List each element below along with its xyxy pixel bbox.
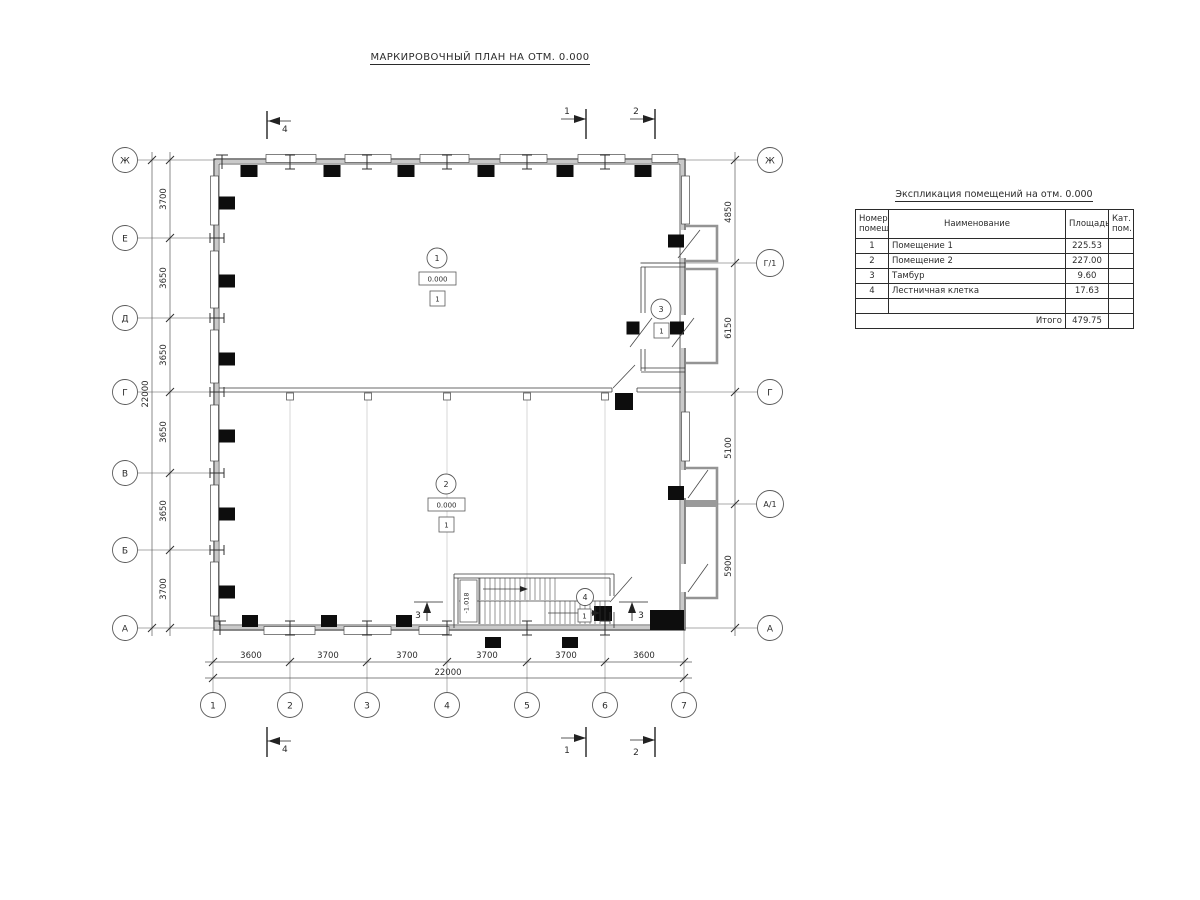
section-arrow-head bbox=[574, 734, 586, 742]
room-name-cell: Помещение 2 bbox=[889, 254, 1066, 269]
stair-landing-elevation: -1.018 bbox=[463, 593, 471, 614]
axis-lines-right bbox=[640, 160, 757, 628]
pier bbox=[219, 430, 235, 443]
dim-left-1: 3700 bbox=[159, 188, 169, 210]
section-label: 2 bbox=[633, 107, 639, 117]
room-name-cell: Лестничная клетка bbox=[889, 284, 1066, 299]
section-label: 2 bbox=[633, 748, 639, 758]
section-label: 1 bbox=[564, 746, 570, 756]
axis-label: А bbox=[122, 625, 129, 635]
pier bbox=[219, 508, 235, 521]
room-3-label: 3 1 bbox=[651, 299, 671, 338]
dim-right-4: 5900 bbox=[724, 555, 734, 577]
pier bbox=[321, 615, 337, 627]
axis-label: 3 bbox=[364, 702, 370, 712]
pier bbox=[562, 637, 578, 648]
room-schedule-table: Номер помещ. Наименование Площадь Кат. п… bbox=[855, 209, 1134, 329]
total-area: 479.75 bbox=[1066, 314, 1109, 329]
window bbox=[420, 155, 469, 163]
section-label: 3 bbox=[415, 611, 421, 621]
dim-left-4: 3650 bbox=[159, 421, 169, 443]
pier bbox=[478, 165, 495, 177]
dim-right-3: 5100 bbox=[724, 437, 734, 459]
stair-treads-lower-left bbox=[480, 601, 520, 624]
elevation-value: 0.000 bbox=[427, 276, 447, 284]
window bbox=[211, 485, 219, 541]
empty-cell bbox=[856, 299, 889, 314]
pier bbox=[398, 165, 415, 177]
dim-right-2: 6150 bbox=[724, 317, 734, 339]
floor-plan-drawing: 3700 3650 3650 3650 3650 3700 22000 4850… bbox=[0, 0, 1200, 900]
porch-outline bbox=[686, 269, 717, 363]
dim-bottom-2: 3700 bbox=[317, 651, 339, 661]
pier bbox=[670, 322, 684, 335]
room-area-cell: 9.60 bbox=[1066, 269, 1109, 284]
room-area-cell: 225.53 bbox=[1066, 239, 1109, 254]
room-labels: 1 0.000 1 2 0.000 1 3 1 bbox=[419, 248, 671, 622]
axis-label: 6 bbox=[602, 702, 608, 712]
floor-type: 1 bbox=[444, 522, 448, 530]
room-schedule-title: Экспликация помещений на отм. 0.000 bbox=[855, 189, 1133, 200]
pier bbox=[485, 637, 501, 648]
room-number-cell: 3 bbox=[856, 269, 889, 284]
section-label: 4 bbox=[282, 745, 288, 755]
door-swings bbox=[610, 230, 708, 602]
drawing-sheet: МАРКИРОВОЧНЫЙ ПЛАН НА ОТМ. 0.000 3700 36… bbox=[0, 0, 1200, 900]
pier bbox=[219, 197, 235, 210]
room-2-label: 2 0.000 1 bbox=[428, 474, 465, 532]
room-number: 1 bbox=[434, 254, 439, 263]
axis-label: 7 bbox=[681, 702, 687, 712]
porch-outline bbox=[686, 468, 717, 598]
axis-label: А bbox=[767, 625, 774, 635]
room-category-cell bbox=[1109, 284, 1134, 299]
dim-bottom-6: 3600 bbox=[633, 651, 655, 661]
dim-bottom-3: 3700 bbox=[396, 651, 418, 661]
wall-post bbox=[444, 393, 451, 400]
porches bbox=[686, 226, 717, 598]
middle-wall bbox=[219, 388, 681, 400]
section-arrow-head bbox=[268, 737, 280, 745]
porch-wall-band bbox=[686, 500, 717, 507]
dim-left-2: 3650 bbox=[159, 267, 169, 289]
dim-ticks bbox=[148, 156, 739, 682]
floor-type: 1 bbox=[435, 296, 439, 304]
axis-label: Ж bbox=[765, 157, 775, 167]
wall-post bbox=[602, 393, 609, 400]
wall-post bbox=[524, 393, 531, 400]
window bbox=[652, 155, 678, 163]
section-arrow-head bbox=[268, 117, 280, 125]
axis-lines-interior bbox=[290, 396, 605, 630]
section-arrow-head bbox=[574, 115, 586, 123]
header-number: Номер помещ. bbox=[856, 210, 889, 239]
door-opening bbox=[681, 564, 690, 592]
axis-label: 5 bbox=[524, 702, 530, 712]
window bbox=[345, 155, 391, 163]
floor-type: 1 bbox=[659, 328, 663, 336]
room-4-label: 4 1 bbox=[577, 589, 594, 623]
section-arrow-head bbox=[423, 602, 431, 613]
building: -1.018 bbox=[210, 155, 717, 649]
axis-label: Г bbox=[122, 389, 128, 399]
section-arrow-head bbox=[628, 602, 636, 613]
table-row: 2 Помещение 2 227.00 bbox=[856, 254, 1134, 269]
table-row: 3 Тамбур 9.60 bbox=[856, 269, 1134, 284]
dim-bottom-total: 22000 bbox=[434, 668, 461, 678]
dim-bottom-5: 3700 bbox=[555, 651, 577, 661]
room-number: 3 bbox=[658, 305, 663, 314]
pier bbox=[324, 165, 341, 177]
window bbox=[500, 155, 547, 163]
header-name: Наименование bbox=[889, 210, 1066, 239]
window bbox=[211, 405, 219, 461]
window bbox=[578, 155, 625, 163]
room-1-label: 1 0.000 1 bbox=[419, 248, 456, 306]
elevation-value: 0.000 bbox=[436, 502, 456, 510]
section-label: 4 bbox=[282, 125, 288, 135]
window bbox=[682, 176, 690, 224]
pier bbox=[557, 165, 574, 177]
axis-label: В bbox=[122, 470, 128, 480]
section-label: 3 bbox=[638, 611, 644, 621]
room-number: 4 bbox=[582, 593, 587, 602]
wall-post bbox=[287, 393, 294, 400]
window bbox=[211, 330, 219, 383]
dim-left-5: 3650 bbox=[159, 500, 169, 522]
empty-cell bbox=[1066, 299, 1109, 314]
axis-label: Г bbox=[767, 389, 773, 399]
axis-label: Д bbox=[121, 315, 128, 325]
header-area: Площадь bbox=[1066, 210, 1109, 239]
axis-label: Б bbox=[122, 547, 128, 557]
room-schedule-title-text: Экспликация помещений на отм. 0.000 bbox=[895, 189, 1092, 202]
axis-label: А/1 bbox=[763, 500, 776, 509]
pier bbox=[219, 353, 235, 366]
room-schedule: Экспликация помещений на отм. 0.000 Номе… bbox=[855, 189, 1133, 329]
room-area-cell: 227.00 bbox=[1066, 254, 1109, 269]
header-category: Кат. пом. bbox=[1109, 210, 1134, 239]
room-category-cell bbox=[1109, 254, 1134, 269]
window bbox=[682, 412, 690, 461]
room-category-cell bbox=[1109, 239, 1134, 254]
window bbox=[211, 251, 219, 308]
pier bbox=[635, 165, 652, 177]
axis-label: Е bbox=[122, 235, 128, 245]
room-name-cell: Помещение 1 bbox=[889, 239, 1066, 254]
pier bbox=[668, 235, 684, 248]
pier bbox=[219, 586, 235, 599]
room-number-cell: 2 bbox=[856, 254, 889, 269]
dimension-lines: 3700 3650 3650 3650 3650 3700 22000 4850… bbox=[141, 152, 739, 682]
dim-left-total: 22000 bbox=[141, 380, 151, 407]
room-number-cell: 1 bbox=[856, 239, 889, 254]
dim-left-6: 3700 bbox=[159, 578, 169, 600]
section-arrow-head bbox=[643, 736, 655, 744]
section-arrow-head bbox=[643, 115, 655, 123]
axis-label: Ж bbox=[120, 157, 130, 167]
window bbox=[266, 155, 316, 163]
pier bbox=[219, 275, 235, 288]
empty-cell bbox=[1109, 299, 1134, 314]
window bbox=[211, 176, 219, 225]
pier bbox=[396, 615, 412, 627]
window bbox=[419, 627, 449, 635]
axis-label: 1 bbox=[210, 702, 216, 712]
axis-label: 4 bbox=[444, 702, 450, 712]
dim-bottom-4: 3700 bbox=[476, 651, 498, 661]
pier bbox=[627, 322, 640, 335]
column-i-symbols-bottom bbox=[214, 155, 610, 635]
pier bbox=[242, 615, 258, 627]
room-area-cell: 17.63 bbox=[1066, 284, 1109, 299]
entrance-block bbox=[650, 610, 684, 630]
table-row: 4 Лестничная клетка 17.63 bbox=[856, 284, 1134, 299]
room-name-cell: Тамбур bbox=[889, 269, 1066, 284]
floor-type: 1 bbox=[582, 613, 586, 621]
window bbox=[211, 562, 219, 616]
room-category-cell bbox=[1109, 269, 1134, 284]
pier bbox=[668, 486, 684, 500]
total-label: Итого bbox=[856, 314, 1066, 329]
empty-cell bbox=[889, 299, 1066, 314]
table-header-row: Номер помещ. Наименование Площадь Кат. п… bbox=[856, 210, 1134, 239]
room-number-cell: 4 bbox=[856, 284, 889, 299]
pier bbox=[615, 393, 633, 410]
dim-bottom-1: 3600 bbox=[240, 651, 262, 661]
axis-label: Г/1 bbox=[764, 259, 777, 268]
room-number: 2 bbox=[443, 480, 448, 489]
dim-right-1: 4850 bbox=[724, 201, 734, 223]
axis-label: 2 bbox=[287, 702, 293, 712]
table-total-row: Итого 479.75 bbox=[856, 314, 1134, 329]
pier bbox=[241, 165, 258, 177]
table-empty-row bbox=[856, 299, 1134, 314]
dim-left-3: 3650 bbox=[159, 344, 169, 366]
empty-cell bbox=[1109, 314, 1134, 329]
wall-post bbox=[365, 393, 372, 400]
middle-wall-lines bbox=[219, 388, 681, 392]
section-label: 1 bbox=[564, 107, 570, 117]
porch-outline bbox=[686, 226, 717, 261]
table-row: 1 Помещение 1 225.53 bbox=[856, 239, 1134, 254]
